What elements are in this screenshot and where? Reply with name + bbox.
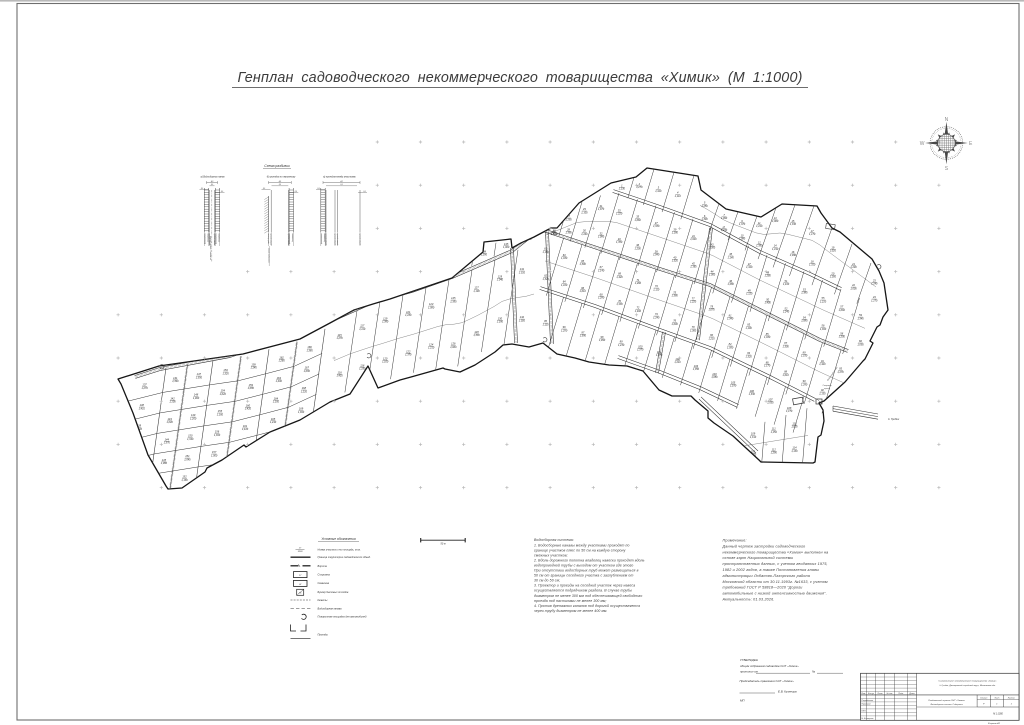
svg-text:ось канавы — граница участков: ось канавы — граница участков bbox=[210, 236, 212, 260]
svg-text:1,250: 1,250 bbox=[359, 367, 366, 370]
svg-text:1,040: 1,040 bbox=[790, 254, 797, 257]
svg-text:1,420: 1,420 bbox=[245, 408, 252, 411]
svg-text:1,020: 1,020 bbox=[830, 250, 837, 253]
svg-text:1,130: 1,130 bbox=[616, 303, 623, 306]
svg-text:1,130: 1,130 bbox=[819, 392, 826, 395]
svg-text:1,320: 1,320 bbox=[543, 278, 550, 281]
svg-text:1,150: 1,150 bbox=[771, 431, 778, 434]
svg-text:1,020: 1,020 bbox=[690, 238, 697, 241]
svg-text:пространственных данных, с уче: пространственных данных, с учетом геодан… bbox=[723, 562, 828, 566]
svg-text:1,170: 1,170 bbox=[764, 364, 771, 367]
svg-text:Н. Контроль: Н. Контроль bbox=[862, 718, 874, 720]
svg-text:М 1:1000: М 1:1000 bbox=[993, 714, 1003, 716]
svg-text:1,280: 1,280 bbox=[598, 297, 605, 300]
svg-text:1,000: 1,000 bbox=[791, 426, 798, 429]
svg-text:1000: 1000 bbox=[298, 551, 304, 553]
svg-text:протокол от: протокол от bbox=[740, 670, 759, 674]
svg-text:1,230: 1,230 bbox=[405, 314, 412, 317]
svg-text:1,080: 1,080 bbox=[598, 235, 605, 238]
svg-text:1,000: 1,000 bbox=[503, 246, 510, 249]
svg-text:1,050: 1,050 bbox=[857, 343, 864, 346]
svg-text:1,350: 1,350 bbox=[196, 376, 203, 379]
svg-text:1,140: 1,140 bbox=[598, 269, 605, 272]
svg-text:1,310: 1,310 bbox=[519, 271, 526, 274]
svg-text:1,300: 1,300 bbox=[709, 246, 716, 249]
svg-text:1,230: 1,230 bbox=[721, 229, 728, 232]
svg-text:1,110: 1,110 bbox=[675, 195, 682, 198]
svg-text:№ док: № док bbox=[886, 692, 893, 695]
svg-text:1,370: 1,370 bbox=[164, 442, 171, 445]
svg-text:1,210: 1,210 bbox=[428, 347, 435, 350]
svg-text:1,240: 1,240 bbox=[653, 316, 660, 319]
svg-text:д. Грибки, Дмитровский городск: д. Грибки, Дмитровский городской округ, … bbox=[939, 684, 996, 687]
svg-text:Схема разбивки: Схема разбивки bbox=[264, 164, 290, 168]
svg-text:1,160: 1,160 bbox=[217, 413, 224, 416]
svg-text:1,080: 1,080 bbox=[161, 462, 168, 465]
svg-text:некоммерческого товарищества «: некоммерческого товарищества «Химик» вып… bbox=[723, 550, 829, 554]
svg-text:1,380: 1,380 bbox=[580, 335, 587, 338]
svg-text:1,330: 1,330 bbox=[749, 393, 756, 396]
svg-text:1,030: 1,030 bbox=[561, 257, 568, 260]
svg-text:1,180: 1,180 bbox=[543, 251, 550, 254]
svg-text:1,110: 1,110 bbox=[653, 288, 660, 291]
svg-text:Формат А1: Формат А1 bbox=[988, 722, 1001, 725]
svg-text:б) проездов по периметру: б) проездов по периметру bbox=[267, 176, 296, 179]
svg-text:1,190: 1,190 bbox=[473, 290, 480, 293]
svg-text:1,010: 1,010 bbox=[783, 374, 790, 377]
svg-text:Бункер бытовых отходов: Бункер бытовых отходов bbox=[318, 591, 349, 594]
svg-text:1,200: 1,200 bbox=[190, 417, 197, 420]
svg-text:1,150: 1,150 bbox=[801, 355, 808, 358]
svg-text:1,170: 1,170 bbox=[786, 410, 793, 413]
svg-text:1,290: 1,290 bbox=[801, 383, 808, 386]
svg-text:1,220: 1,220 bbox=[820, 300, 827, 303]
svg-text:1,330: 1,330 bbox=[790, 223, 797, 226]
svg-text:бровка канавы: бровка канавы bbox=[204, 233, 206, 245]
svg-text:1,370: 1,370 bbox=[637, 349, 644, 352]
svg-text:1,300: 1,300 bbox=[580, 263, 587, 266]
svg-text:1,360: 1,360 bbox=[690, 329, 697, 332]
svg-text:0,5: 0,5 bbox=[363, 191, 365, 193]
svg-text:50 м: 50 м bbox=[441, 542, 446, 545]
svg-text:0,5: 0,5 bbox=[317, 188, 319, 190]
svg-text:1,410: 1,410 bbox=[336, 375, 343, 378]
svg-text:1,320: 1,320 bbox=[222, 372, 229, 375]
svg-text:1,410: 1,410 bbox=[139, 407, 146, 410]
svg-text:1,180: 1,180 bbox=[672, 232, 679, 235]
svg-text:бровка канавы: бровка канавы bbox=[289, 233, 291, 245]
svg-text:1,350: 1,350 bbox=[756, 245, 763, 248]
svg-text:Данный чертеж застройки садово: Данный чертеж застройки садоводческого bbox=[722, 544, 806, 548]
svg-text:1,090: 1,090 bbox=[721, 217, 728, 220]
svg-text:1,280: 1,280 bbox=[728, 283, 735, 286]
svg-text:1,220: 1,220 bbox=[616, 213, 623, 216]
svg-text:Подп.: Подп. bbox=[898, 692, 904, 695]
svg-text:1,220: 1,220 bbox=[690, 301, 697, 304]
svg-text:1,410: 1,410 bbox=[655, 190, 662, 193]
svg-text:1,080: 1,080 bbox=[428, 306, 435, 309]
svg-text:1,370: 1,370 bbox=[739, 223, 746, 226]
svg-text:1,290: 1,290 bbox=[481, 253, 488, 256]
svg-text:основе карт Национальной систе: основе карт Национальной системы bbox=[723, 556, 794, 560]
svg-text:1,320: 1,320 bbox=[746, 355, 753, 358]
svg-text:1. Водосборные канавы между уч: 1. Водосборные канавы между участками пр… bbox=[534, 543, 630, 547]
svg-text:водопроводной трубы с выходом: водопроводной трубы с выходом от участко… bbox=[534, 563, 633, 567]
svg-text:1,120: 1,120 bbox=[746, 293, 753, 296]
svg-text:а) Водосборных канав: а) Водосборных канав bbox=[201, 176, 226, 179]
svg-text:30 см до 50 см;: 30 см до 50 см; bbox=[534, 579, 560, 583]
svg-text:1,350: 1,350 bbox=[693, 368, 700, 371]
svg-text:1,380: 1,380 bbox=[306, 349, 313, 352]
svg-text:Лист: Лист bbox=[993, 698, 999, 700]
svg-text:1,230: 1,230 bbox=[618, 344, 625, 347]
svg-text:д. Грибки: д. Грибки bbox=[888, 417, 900, 421]
svg-text:диаметром не менее 300 мм под: диаметром не менее 300 мм под обеспечива… bbox=[534, 594, 642, 598]
svg-text:1,260: 1,260 bbox=[278, 359, 285, 362]
svg-text:1,380: 1,380 bbox=[801, 292, 808, 295]
svg-text:1,090: 1,090 bbox=[599, 339, 606, 342]
svg-text:1,050: 1,050 bbox=[727, 346, 734, 349]
svg-text:Дата: Дата bbox=[908, 693, 915, 695]
svg-text:1,210: 1,210 bbox=[674, 361, 681, 364]
svg-text:50 см от границы соседнего уча: 50 см от границы соседнего участка с заг… bbox=[534, 574, 633, 578]
svg-text:1,120: 1,120 bbox=[242, 428, 249, 431]
svg-text:Разбивочный чертеж СНТ «Химик»: Разбивочный чертеж СНТ «Химик» bbox=[928, 699, 965, 702]
svg-text:1,340: 1,340 bbox=[727, 318, 734, 321]
svg-text:1,410: 1,410 bbox=[746, 266, 753, 269]
svg-text:1982 и 2002 годов, а также Пос: 1982 и 2002 годов, а также Постановления… bbox=[723, 568, 820, 572]
svg-text:1,270: 1,270 bbox=[871, 299, 878, 302]
svg-text:1,240: 1,240 bbox=[166, 421, 173, 424]
svg-text:1,120: 1,120 bbox=[551, 233, 558, 236]
svg-text:1,060: 1,060 bbox=[450, 346, 457, 349]
svg-text:1,290: 1,290 bbox=[850, 266, 857, 269]
svg-text:3,5: 3,5 bbox=[340, 184, 342, 186]
svg-text:1,020: 1,020 bbox=[519, 319, 526, 322]
svg-text:через трубу диаметром не менее: через трубу диаметром не менее 400 мм. bbox=[534, 609, 608, 613]
svg-text:W: W bbox=[920, 141, 925, 147]
svg-text:1,390: 1,390 bbox=[382, 321, 389, 324]
svg-text:1,010: 1,010 bbox=[580, 290, 587, 293]
svg-text:1,100: 1,100 bbox=[382, 360, 389, 363]
svg-text:1,200: 1,200 bbox=[635, 247, 642, 250]
svg-text:Садоводческое некоммерческое т: Садоводческое некоммерческое товариществ… bbox=[939, 680, 998, 683]
svg-text:4. Против дренажных каналов по: 4. Против дренажных каналов под дорогой … bbox=[534, 604, 640, 608]
svg-text:1,340: 1,340 bbox=[187, 438, 194, 441]
svg-text:администрации Лобаново-Пахорск: администрации Лобаново-Пахорского района bbox=[723, 574, 810, 578]
svg-text:Примечание:: Примечание: bbox=[723, 539, 747, 543]
svg-text:Граница территории садоводческ: Граница территории садоводческого объед. bbox=[318, 556, 372, 559]
svg-text:1,160: 1,160 bbox=[690, 266, 697, 269]
svg-text:Ворота: Ворота bbox=[318, 565, 328, 568]
svg-text:1,090: 1,090 bbox=[672, 323, 679, 326]
svg-text:1,140: 1,140 bbox=[871, 283, 878, 286]
svg-text:1,400: 1,400 bbox=[765, 302, 772, 305]
svg-text:3. Проектор и проезды на сосед: 3. Проектор и проезды на соседний участо… bbox=[534, 584, 635, 588]
svg-text:1,110: 1,110 bbox=[359, 328, 366, 331]
svg-text:Водосборные канавы. Габариты: Водосборные канавы. Габариты bbox=[931, 703, 964, 706]
svg-text:Сторожка: Сторожка bbox=[823, 385, 832, 387]
svg-text:1,130: 1,130 bbox=[791, 450, 798, 453]
svg-text:1,040: 1,040 bbox=[653, 253, 660, 256]
svg-text:1,000: 1,000 bbox=[709, 274, 716, 277]
svg-text:осуществляется подрядчиком раз: осуществляется подрядчиком раздела. В сл… bbox=[534, 589, 632, 593]
svg-text:1,300: 1,300 bbox=[214, 434, 221, 437]
svg-text:требований ГОСТ Р 58818—2020 ": требований ГОСТ Р 58818—2020 "Дороги bbox=[723, 586, 803, 590]
svg-text:1,340: 1,340 bbox=[857, 317, 864, 320]
svg-text:1,370: 1,370 bbox=[598, 208, 605, 211]
svg-text:1,100: 1,100 bbox=[273, 400, 280, 403]
svg-text:Изм: Изм bbox=[862, 693, 866, 695]
svg-text:смежных участков;: смежных участков; bbox=[534, 553, 568, 557]
svg-text:Водосборная система:: Водосборная система: bbox=[534, 538, 574, 542]
svg-text:1,210: 1,210 bbox=[708, 337, 715, 340]
svg-text:Скважина: Скважина bbox=[318, 582, 330, 585]
svg-text:1,270: 1,270 bbox=[636, 186, 643, 189]
svg-text:1,060: 1,060 bbox=[839, 309, 846, 312]
svg-text:1,000: 1,000 bbox=[211, 454, 218, 457]
svg-text:1,100: 1,100 bbox=[581, 211, 588, 214]
svg-text:Кол.уч: Кол.уч bbox=[868, 693, 874, 695]
svg-text:Актуальность: 01.03.2026.: Актуальность: 01.03.2026. bbox=[722, 598, 775, 602]
svg-text:Водосборная канава: Водосборная канава bbox=[318, 608, 343, 611]
svg-text:1,300: 1,300 bbox=[783, 345, 790, 348]
svg-text:бровка канавы: бровка канавы bbox=[321, 233, 323, 245]
svg-text:1,350: 1,350 bbox=[616, 241, 623, 244]
svg-text:Проезды: Проезды bbox=[318, 634, 328, 637]
svg-text:4,0: 4,0 bbox=[279, 180, 281, 183]
svg-text:3,5: 3,5 bbox=[211, 184, 213, 186]
svg-text:Лист: Лист bbox=[876, 693, 882, 695]
svg-text:Условные обозначения: Условные обозначения bbox=[321, 537, 356, 541]
svg-text:1,240: 1,240 bbox=[581, 233, 588, 236]
svg-text:Е.В. Кузнецов: Е.В. Кузнецов bbox=[778, 689, 797, 693]
svg-text:Стадия: Стадия bbox=[980, 697, 987, 700]
svg-text:1,180: 1,180 bbox=[497, 321, 504, 324]
svg-text:1,040: 1,040 bbox=[184, 458, 191, 461]
svg-text:1,370: 1,370 bbox=[405, 354, 412, 357]
svg-text:Сторожка: Сторожка bbox=[318, 573, 331, 576]
svg-text:1,250: 1,250 bbox=[561, 329, 568, 332]
svg-text:1,110: 1,110 bbox=[543, 323, 550, 326]
svg-text:1,080: 1,080 bbox=[304, 370, 311, 373]
svg-text:1,350: 1,350 bbox=[450, 300, 457, 303]
svg-text:1,260: 1,260 bbox=[635, 282, 642, 285]
svg-text:1,240: 1,240 bbox=[270, 421, 277, 424]
svg-text:ГИП: ГИП bbox=[862, 711, 867, 713]
svg-text:1,080: 1,080 bbox=[801, 320, 808, 323]
svg-text:1,310: 1,310 bbox=[750, 436, 757, 439]
svg-text:4,0: 4,0 bbox=[211, 180, 213, 183]
svg-text:1,140: 1,140 bbox=[250, 367, 257, 370]
svg-text:1,040: 1,040 bbox=[497, 279, 504, 282]
svg-text:1,400: 1,400 bbox=[635, 310, 642, 313]
svg-text:проезда под настилами не менее: проезда под настилами не менее 300 мм; bbox=[534, 599, 607, 603]
svg-text:Проверил: Проверил bbox=[862, 704, 872, 706]
svg-text:1,220: 1,220 bbox=[301, 390, 308, 393]
svg-text:1,320: 1,320 bbox=[672, 260, 679, 263]
svg-text:1,250: 1,250 bbox=[565, 218, 572, 221]
svg-text:1,200: 1,200 bbox=[839, 336, 846, 339]
svg-text:1,270: 1,270 bbox=[837, 371, 844, 374]
svg-text:Председатель правления СНТ «Хи: Председатель правления СНТ «Химик» bbox=[740, 679, 795, 683]
svg-text:1,400: 1,400 bbox=[276, 380, 283, 383]
svg-text:УТВЕРЖДЕН: УТВЕРЖДЕН bbox=[740, 658, 759, 662]
svg-text:1,050: 1,050 bbox=[711, 376, 718, 379]
svg-text:1,390: 1,390 bbox=[172, 380, 179, 383]
svg-text:бровка канавы: бровка канавы bbox=[215, 233, 217, 245]
svg-text:1,130: 1,130 bbox=[619, 188, 626, 191]
svg-text:1,100: 1,100 bbox=[169, 401, 176, 404]
svg-text:1,060: 1,060 bbox=[772, 220, 779, 223]
svg-text:1,060: 1,060 bbox=[193, 397, 200, 400]
svg-text:границе участков плюс по 50 см: границе участков плюс по 50 см на каждую… bbox=[534, 548, 626, 552]
svg-text:1,070: 1,070 bbox=[708, 309, 715, 312]
svg-text:охрана: охрана bbox=[824, 388, 830, 390]
svg-text:1,140: 1,140 bbox=[728, 256, 735, 259]
svg-text:1,360: 1,360 bbox=[820, 328, 827, 331]
svg-text:0,5: 0,5 bbox=[295, 191, 297, 193]
svg-text:Московской области от 30.11.19: Московской области от 30.11.1993г. №1633… bbox=[723, 580, 828, 584]
svg-text:1,060: 1,060 bbox=[635, 219, 642, 222]
svg-text:1,310: 1,310 bbox=[809, 264, 816, 267]
svg-text:1,380: 1,380 bbox=[672, 294, 679, 297]
svg-text:1,360: 1,360 bbox=[298, 411, 305, 414]
svg-text:1,180: 1,180 bbox=[181, 479, 188, 482]
svg-text:1,270: 1,270 bbox=[336, 337, 343, 340]
svg-text:1,000: 1,000 bbox=[850, 287, 857, 290]
svg-text:1,390: 1,390 bbox=[701, 218, 708, 221]
svg-text:общим собранием садоводов СНТ: общим собранием садоводов СНТ «Химик» bbox=[740, 664, 799, 668]
svg-text:1,070: 1,070 bbox=[656, 354, 663, 357]
svg-text:N: N bbox=[945, 117, 949, 123]
svg-text:1,160: 1,160 bbox=[561, 284, 568, 287]
svg-text:1,160: 1,160 bbox=[830, 275, 837, 278]
svg-text:1,210: 1,210 bbox=[756, 225, 763, 228]
svg-text:1,190: 1,190 bbox=[730, 385, 737, 388]
svg-text:0,5: 0,5 bbox=[263, 188, 265, 190]
svg-text:1,030: 1,030 bbox=[764, 336, 771, 339]
svg-text:1,100: 1,100 bbox=[783, 283, 790, 286]
svg-text:0,5: 0,5 bbox=[221, 191, 223, 193]
svg-text:1,020: 1,020 bbox=[220, 393, 227, 396]
svg-text:в) проездов между участками: в) проездов между участками bbox=[323, 176, 356, 179]
svg-text:Листов: Листов bbox=[1007, 698, 1015, 700]
svg-text:автомобильные с низкой интенси: автомобильные с низкой интенсивностью дв… bbox=[723, 592, 828, 596]
svg-text:1,330: 1,330 bbox=[653, 225, 660, 228]
svg-text:Номер участка и его площадь, м: Номер участка и его площадь, м.кв. bbox=[318, 549, 361, 552]
svg-text:1,420: 1,420 bbox=[819, 363, 826, 366]
svg-text:Кюветы: Кюветы bbox=[318, 599, 328, 602]
svg-text:2. Вдоль дорожного полотна вла: 2. Вдоль дорожного полотна владелец наве… bbox=[533, 558, 645, 562]
svg-text:1,290: 1,290 bbox=[771, 452, 778, 455]
svg-text:3,5: 3,5 bbox=[279, 184, 281, 186]
svg-text:1,270: 1,270 bbox=[141, 387, 148, 390]
svg-text:1,190: 1,190 bbox=[746, 327, 753, 330]
svg-text:Генплан садоводческого неком: Генплан садоводческого некоммерческого т… bbox=[237, 70, 802, 86]
svg-text:1,280: 1,280 bbox=[248, 387, 255, 390]
svg-text:1,190: 1,190 bbox=[772, 248, 779, 251]
svg-text:При отсутствии водосборных тру: При отсутствии водосборных труб может ра… bbox=[534, 569, 639, 573]
svg-text:1,390: 1,390 bbox=[565, 232, 572, 235]
svg-text:1,250: 1,250 bbox=[701, 205, 708, 208]
svg-text:1,080: 1,080 bbox=[739, 238, 746, 241]
svg-text:1,170: 1,170 bbox=[809, 233, 816, 236]
svg-text:Разработал: Разработал bbox=[862, 700, 875, 702]
svg-text:1,260: 1,260 bbox=[765, 275, 772, 278]
svg-text:1,330: 1,330 bbox=[473, 334, 480, 337]
svg-text:1,030: 1,030 bbox=[767, 401, 774, 404]
svg-text:1,420: 1,420 bbox=[616, 276, 623, 279]
svg-text:Поворотная площадка для автомо: Поворотная площадка для автомобилей bbox=[318, 616, 368, 619]
svg-text:0,5: 0,5 bbox=[201, 188, 203, 190]
svg-text:4,0: 4,0 bbox=[340, 180, 342, 183]
svg-text:1,240: 1,240 bbox=[783, 311, 790, 314]
